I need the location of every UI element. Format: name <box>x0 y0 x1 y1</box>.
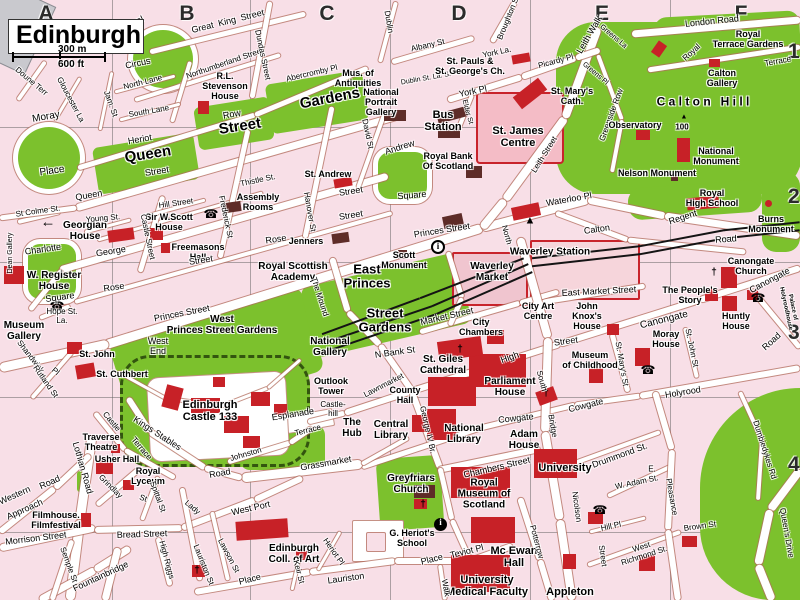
road-segment <box>490 1 517 43</box>
cross-icon: † <box>194 566 200 576</box>
landmark-building <box>607 324 619 335</box>
road-segment <box>665 530 681 600</box>
park-area <box>762 172 800 252</box>
landmark-building <box>274 404 287 415</box>
road-segment <box>610 333 631 392</box>
map-canvas: Edinburgh 300 m 600 ft ☎☎☎☎☎ii▲▲←†††††AB… <box>0 0 800 600</box>
map-label: St. Pauls & St. George's Ch. <box>435 57 505 77</box>
road-segment <box>665 450 675 530</box>
map-label: Museum Gallery <box>4 320 45 342</box>
landmark-building <box>677 138 690 162</box>
landmark-building <box>191 398 220 413</box>
road-segment <box>541 338 552 432</box>
landmark-building <box>81 513 91 527</box>
phone-icon: ☎ <box>751 292 766 304</box>
special-area <box>366 532 386 552</box>
map-label: Moray House <box>652 330 680 350</box>
landmark-building <box>75 362 96 379</box>
landmark-building <box>111 444 120 453</box>
cross-icon: † <box>711 268 717 278</box>
map-label: Huntly House <box>722 312 750 332</box>
landmark-building <box>96 460 113 474</box>
landmark-building <box>235 518 288 541</box>
landmark-building <box>487 330 504 344</box>
road-segment <box>378 1 398 62</box>
park-area <box>28 244 76 299</box>
scale-tick <box>12 52 14 62</box>
map-label: Western <box>0 485 32 508</box>
grid-number: 4 <box>788 453 800 477</box>
landmark-building <box>67 342 82 354</box>
scale-tick <box>104 52 106 62</box>
map-label: Nicolson <box>570 491 583 523</box>
landmark-building <box>451 555 510 592</box>
landmark-building <box>224 416 249 433</box>
landmark-building <box>469 354 526 387</box>
phone-icon: ☎ <box>204 208 219 220</box>
road-segment <box>54 77 82 121</box>
cross-icon: † <box>420 500 426 510</box>
map-label: Thistle St. <box>240 173 277 189</box>
map-label: Lauriston <box>327 572 365 587</box>
road-segment <box>204 465 243 481</box>
scale-bar: 300 m 600 ft <box>10 44 120 78</box>
landmark-building <box>671 174 678 181</box>
info-dark-icon: i <box>434 518 447 531</box>
landmark-building <box>589 368 603 383</box>
landmark-building <box>722 296 737 311</box>
cross-icon: † <box>457 345 463 355</box>
landmark-building <box>438 126 460 138</box>
map-label: Dublin St. La. S. <box>400 71 451 87</box>
landmark-building <box>198 101 209 114</box>
landmark-building <box>331 232 349 244</box>
grid-letter: D <box>451 2 466 26</box>
road-segment <box>344 388 413 416</box>
grid-number: 3 <box>788 321 800 345</box>
map-label: John Knox's House <box>572 302 602 332</box>
map-label: The Hub <box>342 417 361 439</box>
road-segment <box>218 129 251 258</box>
road-segment <box>438 565 447 600</box>
road-segment <box>607 464 673 498</box>
peak-icon: ▲ <box>681 114 688 121</box>
landmark-building <box>213 377 225 387</box>
road-segment <box>391 36 474 65</box>
phone-icon: ☎ <box>50 300 65 312</box>
landmark-building <box>563 554 576 569</box>
grid-letter: E <box>595 2 609 26</box>
landmark-building <box>682 536 697 547</box>
landmark-building <box>123 480 134 490</box>
scale-label-metric: 300 m <box>58 44 86 55</box>
landmark-building <box>534 449 577 478</box>
landmark-building <box>161 243 170 253</box>
road-segment <box>378 343 415 392</box>
grid-number: 1 <box>788 40 800 64</box>
landmark-building <box>296 551 307 560</box>
road-segment <box>555 211 629 243</box>
landmark-building <box>384 110 406 121</box>
map-label: Road <box>761 331 784 353</box>
info-white-icon: i <box>431 240 445 254</box>
road-segment <box>559 297 701 347</box>
landmark-building <box>251 392 270 406</box>
grid-line-horizontal <box>0 262 800 263</box>
landmark-building <box>471 517 515 543</box>
road-segment <box>156 537 173 585</box>
grid-line-vertical <box>112 0 113 600</box>
grid-letter: F <box>735 2 748 26</box>
grid-letter: C <box>319 2 334 26</box>
landmark-building <box>466 166 482 178</box>
landmark-building <box>107 227 134 243</box>
landmark-building <box>765 200 772 207</box>
landmark-building <box>709 59 720 67</box>
landmark-building <box>721 267 737 288</box>
landmark-building <box>705 289 718 301</box>
triangle-icon: ▲ <box>525 216 536 227</box>
grid-letter: B <box>179 2 194 26</box>
landmark-building <box>4 266 24 284</box>
map-label: North <box>499 224 513 245</box>
landmark-building <box>243 436 260 448</box>
map-label: Edinburgh Coll. of Art <box>269 543 320 565</box>
road-segment <box>140 476 160 520</box>
map-label: Gloucester La <box>54 76 85 124</box>
grid-number: 2 <box>788 185 800 209</box>
phone-icon: ☎ <box>593 504 608 516</box>
road-segment <box>683 328 699 379</box>
phone-icon: ☎ <box>641 364 656 376</box>
landmark-building <box>639 555 655 571</box>
map-label: Outlook Tower <box>314 377 348 397</box>
road-segment <box>210 512 230 581</box>
landmark-building <box>398 250 407 259</box>
cross-icon: † <box>543 389 549 399</box>
landmark-building <box>414 485 435 498</box>
landmark-building <box>427 409 456 440</box>
landmark-building <box>451 467 510 498</box>
landmark-building <box>224 201 241 213</box>
road-segment <box>479 403 575 431</box>
landmark-building <box>511 53 530 65</box>
road-segment <box>537 559 555 600</box>
road-segment <box>652 391 675 451</box>
road-segment <box>0 486 57 535</box>
map-label: York La. <box>482 46 512 61</box>
landmark-building <box>442 213 464 229</box>
landmark-building <box>636 130 650 140</box>
arrow-left-icon: ← <box>41 215 56 230</box>
scale-label-imperial: 600 ft <box>58 59 84 70</box>
park-area <box>18 127 80 189</box>
landmark-building <box>150 228 163 240</box>
road-segment <box>575 394 641 408</box>
